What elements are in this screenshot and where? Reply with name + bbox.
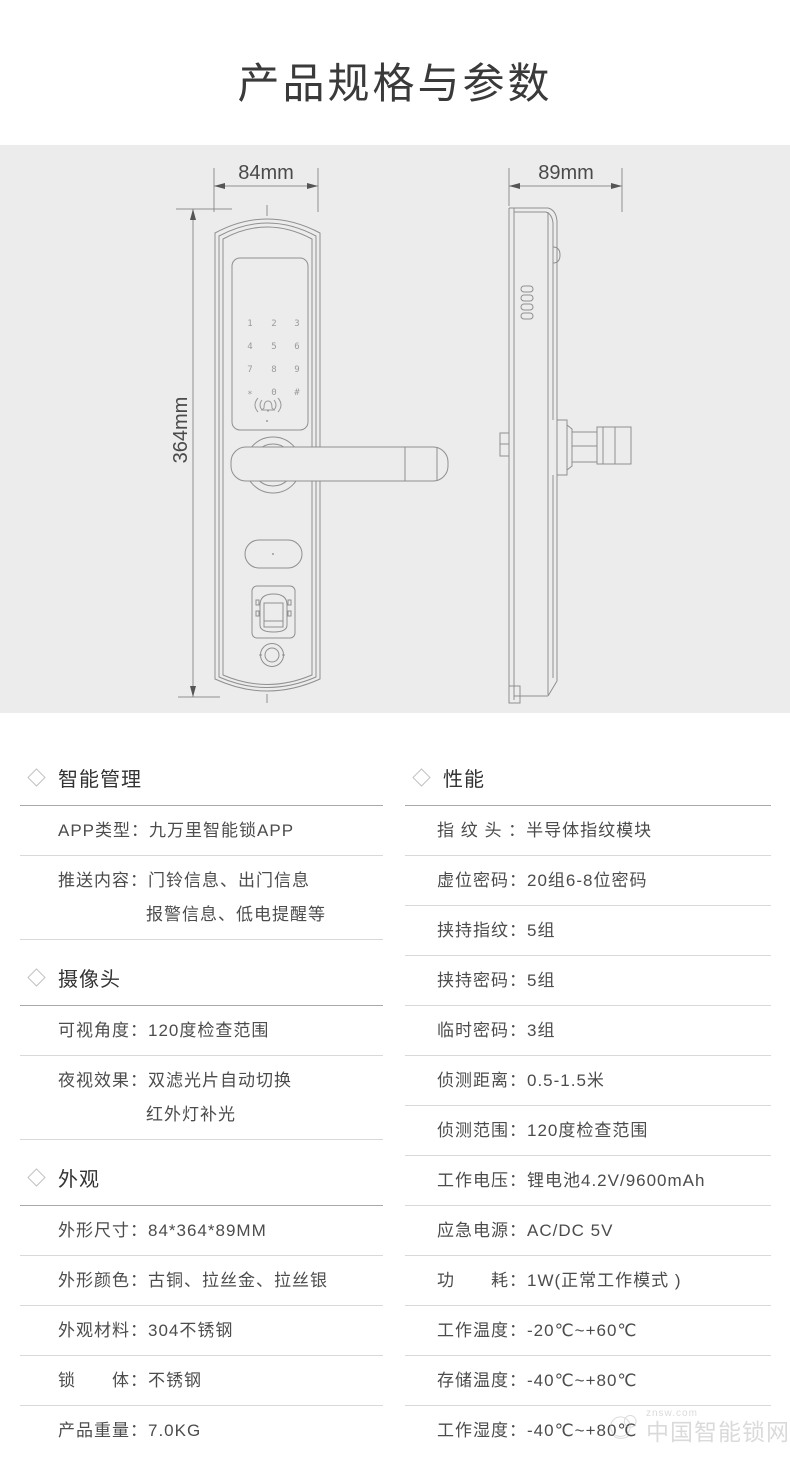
spec-row: 工作电压：锂电池4.2V/9600mAh — [405, 1156, 771, 1206]
keypad: 1 2 3 4 5 6 7 8 9 * 0 # — [247, 319, 300, 400]
keypad-digit: 5 — [271, 342, 276, 352]
spec-row: APP类型：九万里智能锁APP — [20, 806, 383, 856]
spec-row: 外形颜色：古铜、拉丝金、拉丝银 — [20, 1256, 383, 1306]
spec-row: 指 纹 头 ：半导体指纹模块 — [405, 806, 771, 856]
spec-row: 侦测距离：0.5-1.5米 — [405, 1056, 771, 1106]
section-title: 外观 — [58, 1163, 100, 1192]
section-title: 智能管理 — [58, 763, 142, 792]
keypad-digit: 9 — [294, 365, 299, 375]
spec-row: 挟持指纹：5组 — [405, 906, 771, 956]
spec-row: 可视角度：120度检查范围 — [20, 1006, 383, 1056]
keypad-digit: 3 — [294, 319, 299, 329]
section-smart-management: 智能管理 APP类型：九万里智能锁APP 推送内容：门铃信息、出门信息 报警信息… — [20, 757, 383, 940]
page-title: 产品规格与参数 — [0, 50, 790, 111]
side-width-dimension: 89mm — [509, 162, 622, 212]
watermark-site: znsw.com — [646, 1408, 790, 1419]
bottom-knob — [259, 644, 285, 667]
fingerprint-sensor — [252, 586, 295, 638]
section-title: 性能 — [443, 763, 485, 792]
diamond-bullet-icon — [412, 768, 430, 786]
spec-row: 锁 体：不锈钢 — [20, 1356, 383, 1406]
watermark-name: 中国智能锁网 — [646, 1419, 790, 1445]
keypad-digit: 1 — [247, 319, 252, 329]
spec-row: 侦测范围：120度检查范围 — [405, 1106, 771, 1156]
section-appearance: 外观 外形尺寸：84*364*89MM 外形颜色：古铜、拉丝金、拉丝银 外观材料… — [20, 1157, 383, 1455]
spec-row: 临时密码：3组 — [405, 1006, 771, 1056]
spec-column-left: 智能管理 APP类型：九万里智能锁APP 推送内容：门铃信息、出门信息 报警信息… — [20, 757, 383, 1455]
side-depth-label: 89mm — [538, 162, 594, 184]
keypad-digit: 0 — [271, 388, 276, 398]
front-width-label: 84mm — [238, 162, 294, 184]
spec-row: 推送内容：门铃信息、出门信息 报警信息、低电提醒等 — [20, 856, 383, 940]
lock-technical-drawing: 84mm 364mm 1 2 3 4 5 — [0, 145, 790, 713]
spec-row: 夜视效果：双滤光片自动切换 红外灯补光 — [20, 1056, 383, 1140]
spec-row: 挟持密码：5组 — [405, 956, 771, 1006]
diamond-bullet-icon — [27, 768, 45, 786]
front-handle — [231, 447, 448, 481]
height-label: 364mm — [170, 397, 192, 464]
spec-row: 应急电源：AC/DC 5V — [405, 1206, 771, 1256]
side-handle — [557, 420, 631, 475]
spec-column-right: 性能 指 纹 头 ：半导体指纹模块 虚位密码：20组6-8位密码 挟持指纹：5组… — [405, 757, 771, 1455]
keypad-digit: 4 — [247, 342, 252, 352]
diamond-bullet-icon — [27, 968, 45, 986]
diamond-bullet-icon — [27, 1168, 45, 1186]
spec-row: 产品重量：7.0KG — [20, 1406, 383, 1455]
front-width-dimension: 84mm — [214, 162, 318, 212]
spec-row: 外形尺寸：84*364*89MM — [20, 1206, 383, 1256]
section-camera: 摄像头 可视角度：120度检查范围 夜视效果：双滤光片自动切换 红外灯补光 — [20, 957, 383, 1140]
section-performance: 性能 指 纹 头 ：半导体指纹模块 虚位密码：20组6-8位密码 挟持指纹：5组… — [405, 757, 771, 1455]
spec-row: 虚位密码：20组6-8位密码 — [405, 856, 771, 906]
section-title: 摄像头 — [58, 963, 121, 992]
keypad-digit: * — [247, 390, 252, 400]
keypad-digit: 7 — [247, 365, 252, 375]
doorbell-icon — [255, 398, 281, 412]
watermark-logo-icon — [606, 1399, 640, 1453]
watermark: znsw.com 中国智能锁网 — [606, 1390, 790, 1462]
spec-row: 外观材料：304不锈钢 — [20, 1306, 383, 1356]
keypad-digit: # — [294, 388, 300, 398]
front-view-drawing: 1 2 3 4 5 6 7 8 9 * 0 # — [215, 205, 448, 703]
spec-row: 功 耗：1W(正常工作模式 ) — [405, 1256, 771, 1306]
side-view-drawing — [500, 208, 631, 703]
keypad-digit: 6 — [294, 342, 299, 352]
keypad-digit: 2 — [271, 319, 276, 329]
spec-row: 工作温度：-20℃~+60℃ — [405, 1306, 771, 1356]
keypad-digit: 8 — [271, 365, 276, 375]
